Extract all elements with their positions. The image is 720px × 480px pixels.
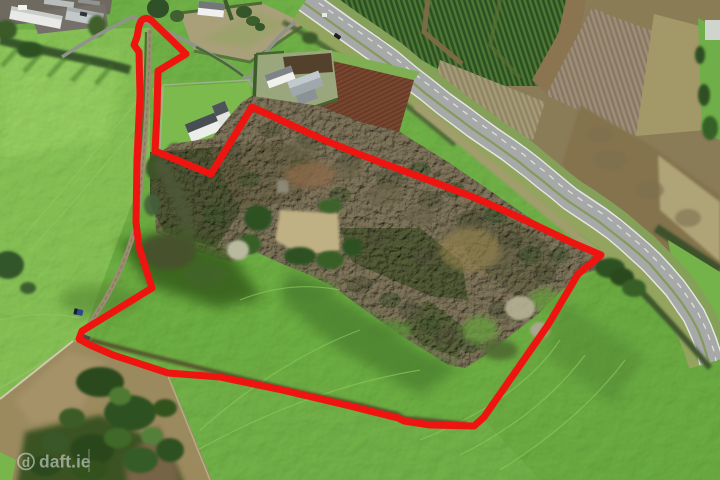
- svg-text:d: d: [22, 455, 30, 470]
- svg-text:daft.ie: daft.ie: [39, 452, 91, 472]
